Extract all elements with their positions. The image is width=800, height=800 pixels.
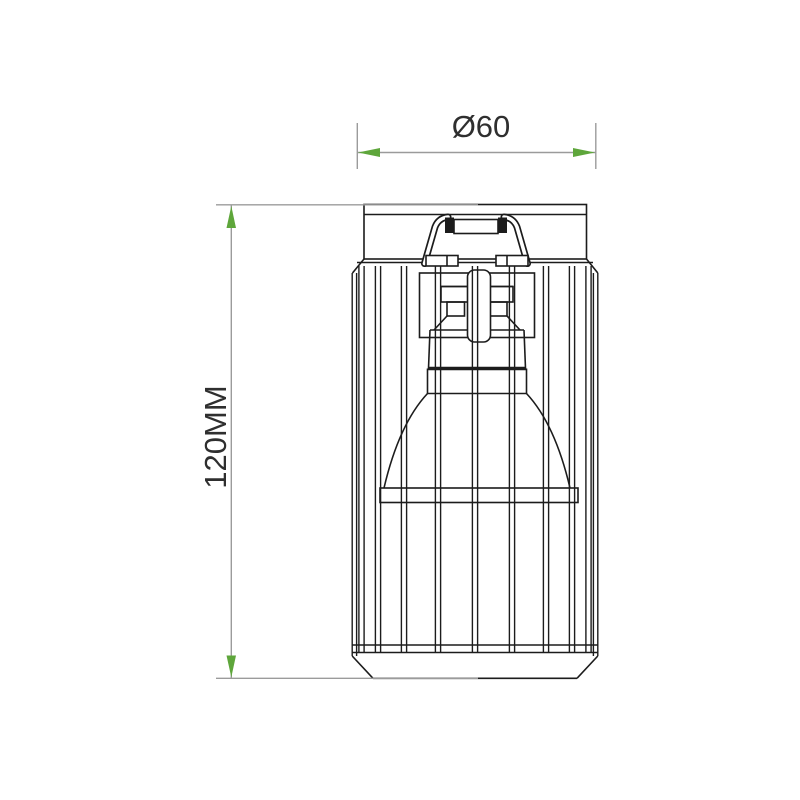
dim-arrow-up-icon bbox=[227, 206, 237, 228]
technical-drawing-svg: Ø60 120MM bbox=[0, 0, 800, 800]
canopy-plate bbox=[353, 205, 598, 274]
dimension-width: Ø60 bbox=[357, 109, 596, 169]
dim-arrow-right-icon bbox=[573, 148, 595, 157]
dim-arrow-left-icon bbox=[358, 148, 380, 157]
fixture-drawing bbox=[352, 205, 598, 679]
dimension-height-label: 120MM bbox=[198, 385, 233, 488]
drawing-canvas: Ø60 120MM bbox=[0, 0, 800, 800]
dimension-width-label: Ø60 bbox=[452, 109, 511, 144]
dim-arrow-down-icon bbox=[227, 656, 237, 678]
